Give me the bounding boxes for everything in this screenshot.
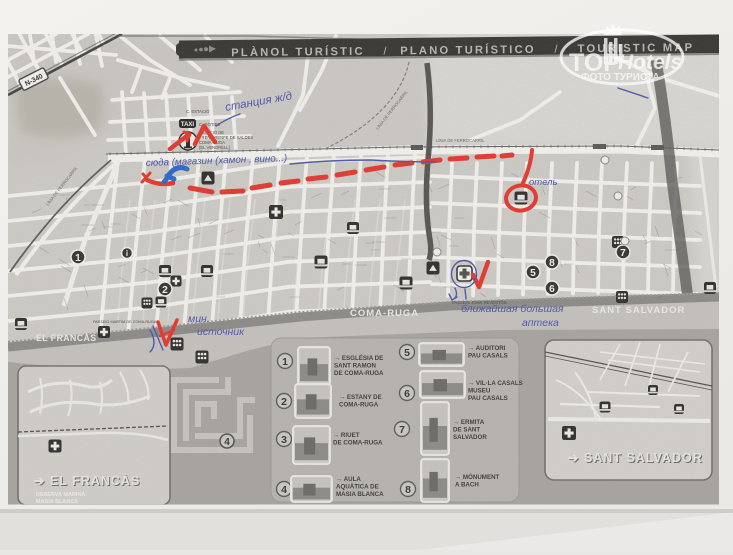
svg-text:4: 4	[281, 484, 287, 496]
svg-text:2: 2	[162, 285, 168, 296]
svg-text:4: 4	[224, 437, 230, 448]
svg-text:аптека: аптека	[522, 317, 559, 329]
svg-text:1: 1	[75, 253, 81, 264]
svg-text:TAXI: TAXI	[181, 122, 195, 128]
svg-text:C. ESTACIÓ: C. ESTACIÓ	[186, 109, 210, 114]
svg-text:COMA-RUGA: COMA-RUGA	[350, 308, 419, 319]
svg-text:6: 6	[549, 284, 555, 295]
svg-text:ближайшая большая: ближайшая большая	[461, 303, 564, 315]
svg-text:5: 5	[404, 347, 410, 359]
svg-text:RESERVA MARINA: RESERVA MARINA	[36, 492, 85, 498]
svg-text:8: 8	[405, 484, 411, 496]
svg-text:6: 6	[404, 388, 410, 400]
svg-text:2: 2	[281, 396, 287, 408]
svg-text:мин.: мин.	[188, 313, 210, 325]
svg-text:8: 8	[549, 258, 555, 269]
svg-text:3: 3	[281, 434, 287, 446]
svg-text:➔ EL FRANCÀS: ➔ EL FRANCÀS	[34, 473, 140, 488]
svg-text:1: 1	[282, 356, 288, 368]
svg-text:PLÀNOL TURÍSTIC: PLÀNOL TURÍSTIC	[231, 45, 365, 59]
svg-text:(EL VENDRELL): (EL VENDRELL)	[199, 145, 231, 150]
svg-text:PASSEIG MARTIM DE COMA-RUGA: PASSEIG MARTIM DE COMA-RUGA	[93, 320, 157, 324]
svg-text:SANT SALVADOR: SANT SALVADOR	[592, 305, 685, 316]
svg-text:➔ SANT SALVADOR: ➔ SANT SALVADOR	[568, 451, 703, 465]
svg-text:→ AUDITORIPAU CASALS: → AUDITORIPAU CASALS	[468, 345, 508, 360]
svg-text:i: i	[126, 249, 128, 258]
svg-text:7: 7	[399, 424, 405, 436]
svg-text:→ ESTANY DECOMA-RUGA: → ESTANY DECOMA-RUGA	[339, 394, 382, 409]
svg-text:PLANO TURÍSTICO: PLANO TURÍSTICO	[400, 43, 536, 57]
svg-text:отель: отель	[529, 177, 558, 188]
svg-text:ФОТО ТУРИСТА: ФОТО ТУРИСТА	[581, 72, 660, 83]
svg-text:источник: источник	[197, 326, 245, 338]
svg-text:5: 5	[530, 268, 536, 279]
svg-text:Hotels: Hotels	[618, 51, 682, 74]
svg-text:LÍNIA DE FERROCARRIL: LÍNIA DE FERROCARRIL	[436, 138, 485, 143]
svg-text:7: 7	[620, 248, 626, 259]
svg-text:MASIA BLANCA: MASIA BLANCA	[36, 499, 78, 505]
svg-text:EL FRANCÀS: EL FRANCÀS	[36, 333, 97, 343]
